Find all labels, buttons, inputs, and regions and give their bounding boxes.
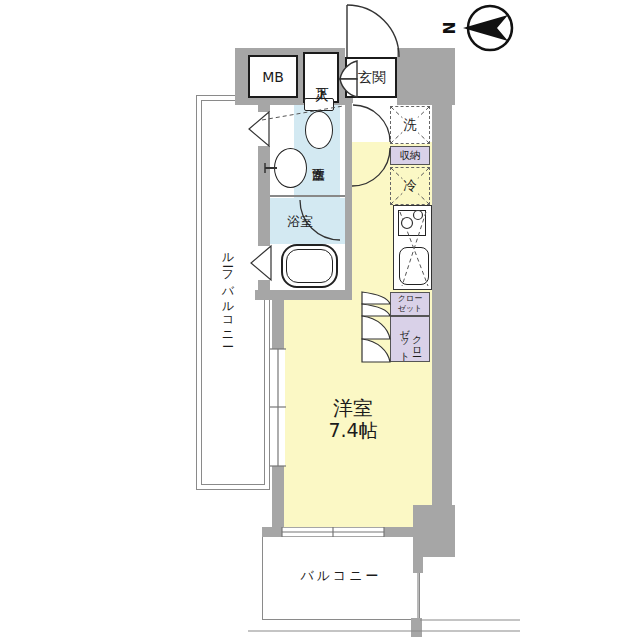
wall-top-right [397, 48, 455, 105]
closet-upper-label-line1: クロー [398, 294, 422, 303]
meter-box-label: MB [262, 69, 284, 85]
stove [398, 210, 426, 236]
bathtub [281, 244, 338, 288]
balcony-post [411, 618, 422, 637]
wall-room-left [272, 300, 284, 527]
wall-wet-bottom [255, 290, 352, 300]
wall-wet-left [258, 105, 270, 290]
wall-right [432, 105, 452, 505]
bathtub-inner-line [286, 249, 333, 283]
bathroom-label: 浴室 [287, 215, 313, 230]
storage-label: 収納 [400, 149, 421, 161]
closet-lower-label-col1: クロー [410, 322, 423, 356]
shoe-storage-box [303, 52, 339, 103]
pillar-stem [413, 557, 423, 573]
floor-plan: N [0, 0, 640, 640]
toilet-bowl [305, 111, 333, 149]
western-room-size: 7.4帖 [328, 420, 377, 442]
wall-room-bottom [262, 527, 432, 537]
wash-basin [274, 148, 307, 188]
closet-lower-label-col2: ゼット [398, 322, 411, 356]
balcony-label: バルコニー [300, 569, 381, 584]
compass-icon: N [441, 6, 512, 50]
closet-upper-label-line2: ゼット [398, 304, 423, 313]
washroom-door-swing [353, 105, 390, 142]
compass-north-letter: N [441, 22, 459, 35]
western-room-name: 洋室 [328, 397, 377, 420]
entrance-label: 玄関 [358, 69, 386, 85]
closet-upper-label: クロー ゼット [398, 294, 423, 313]
washing-machine-label: 洗 [402, 117, 418, 133]
roof-balcony-label: ルーフバルコニー [220, 244, 234, 342]
pillar-bottom-right [413, 505, 455, 557]
kitchen-sink [399, 247, 429, 285]
closet-lower-label: クロー ゼット [398, 322, 423, 356]
toilet-tank [304, 98, 334, 111]
western-room-label: 洋室 7.4帖 [328, 397, 377, 442]
wall-corridor-left [345, 103, 352, 290]
refrigerator-label: 冷 [402, 178, 418, 194]
